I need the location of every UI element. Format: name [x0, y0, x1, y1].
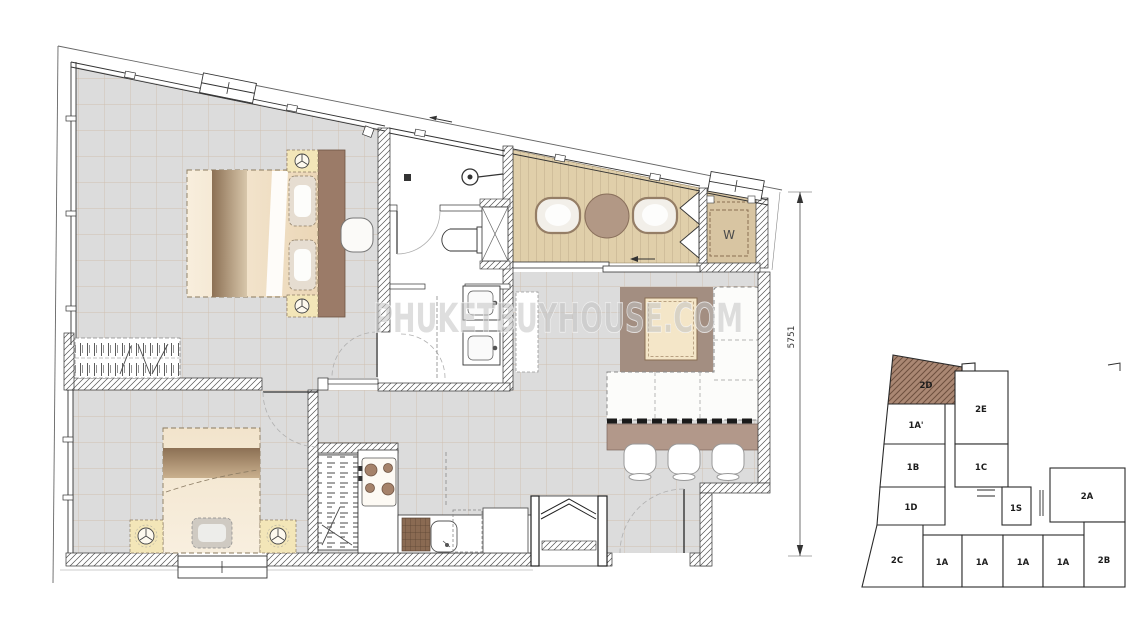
washer-label: W [723, 228, 735, 242]
kitchen-sink [402, 518, 457, 552]
keyplan-unit-2B [1084, 522, 1125, 587]
window-symbol-bedroom2 [178, 556, 267, 578]
keyplan-label-1A-4: 1A [1057, 558, 1070, 568]
keyplan-label-1A-prime: 1A' [908, 421, 923, 431]
shaft [480, 199, 510, 269]
keyplan-label-1C: 1C [975, 463, 987, 473]
dimension-value: 5751 [787, 326, 797, 349]
keyplan-label-2A: 2A [1081, 492, 1094, 502]
keyplan-label-2E: 2E [975, 405, 987, 415]
balcony-table [585, 194, 629, 238]
keyplan-label-2D: 2D [920, 381, 933, 391]
balcony-sliding-door [513, 262, 700, 272]
sliding-arrow-top [429, 116, 452, 122]
watermark-text: PHUKETBUYHOUSE.COM [373, 296, 743, 342]
keyplan-unit-2D [888, 355, 962, 404]
shower-drain [404, 174, 411, 181]
dimension-5751: 5751 [787, 192, 812, 556]
stove [359, 458, 397, 506]
keyplan-label-1B: 1B [907, 463, 919, 473]
pillow [289, 240, 316, 290]
bar-stools [624, 444, 744, 481]
keyplan-label-1D: 1D [905, 503, 918, 513]
pillow [289, 176, 316, 226]
floorplan-canvas: W 5751 PHUKETBUYHOUSE.COM 2D [0, 0, 1145, 627]
nightstand-lamp [130, 520, 163, 553]
floorplan-page: W 5751 PHUKETBUYHOUSE.COM 2D [0, 0, 1145, 627]
key-plan: 2D 1A' 2E 1B 1C 1D 1S 2A 2C 1A 1A 1A 1A … [862, 355, 1125, 587]
keyplan-label-1A-1: 1A [936, 558, 949, 568]
wardrobe [75, 338, 180, 378]
desk-chair [341, 218, 373, 252]
keyplan-label-2C: 2C [891, 556, 903, 566]
balcony-chair [633, 198, 677, 233]
ac-niche [531, 496, 607, 566]
pantry-cabinet [318, 455, 358, 550]
keyplan-label-2B: 2B [1098, 556, 1110, 566]
fridge [483, 508, 528, 553]
keyplan-label-1A-2: 1A [976, 558, 989, 568]
nightstand-lamp [260, 520, 296, 553]
master-bed [187, 170, 318, 297]
keyplan-tick-mark [1108, 363, 1120, 371]
nightstand-lamp [287, 295, 318, 317]
keyplan-label-1S: 1S [1010, 504, 1022, 514]
bed2 [163, 428, 260, 553]
balcony-chair [536, 198, 580, 233]
keyplan-label-1A-3: 1A [1017, 558, 1030, 568]
nightstand-lamp [287, 150, 318, 172]
floor-plan: W 5751 PHUKETBUYHOUSE.COM [53, 46, 812, 583]
